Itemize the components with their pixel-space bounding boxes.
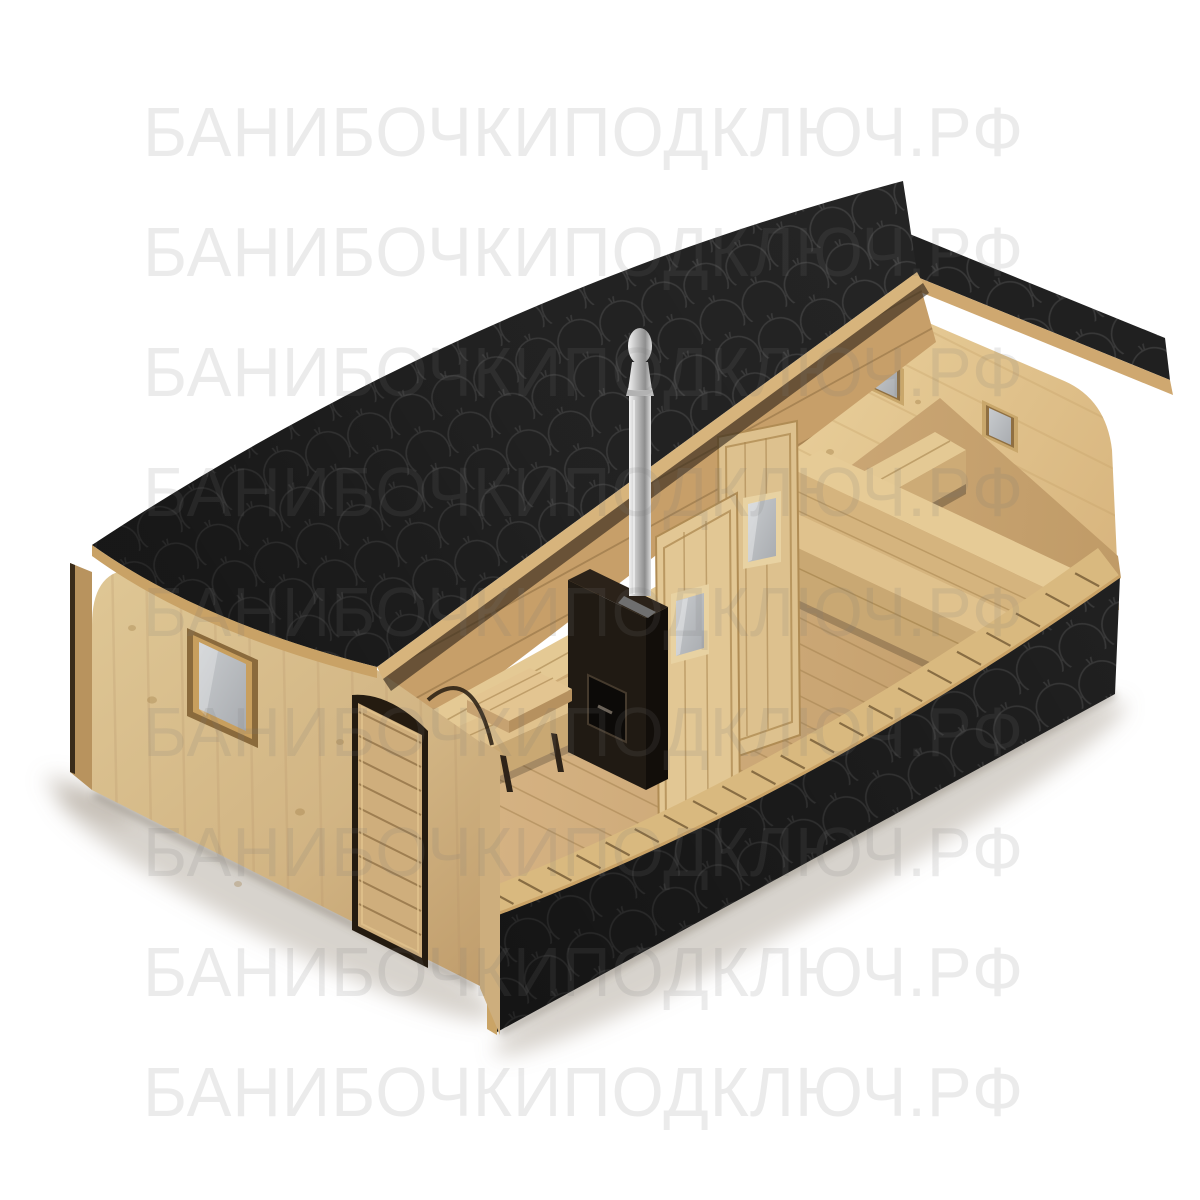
front-door (352, 695, 428, 968)
sauna-product-render: БАНИБОЧКИПОДКЛЮЧ.РФ БАНИБОЧКИПОДКЛЮЧ.РФ … (0, 0, 1200, 1200)
chimney-cap (628, 328, 652, 364)
sauna-stove (568, 569, 668, 790)
partition-window-near (671, 584, 709, 664)
wall-left-edge (70, 563, 92, 790)
sauna-3d-illustration (0, 0, 1200, 1200)
partition-window-far (743, 491, 781, 569)
